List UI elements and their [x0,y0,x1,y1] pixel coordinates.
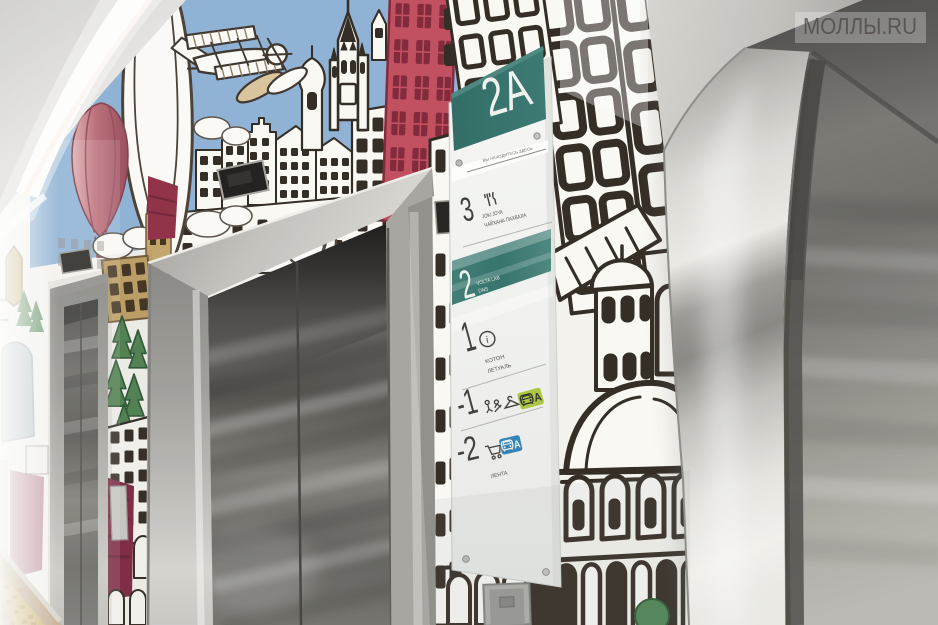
svg-text:МОЛЛЫ.RU: МОЛЛЫ.RU [803,13,917,39]
